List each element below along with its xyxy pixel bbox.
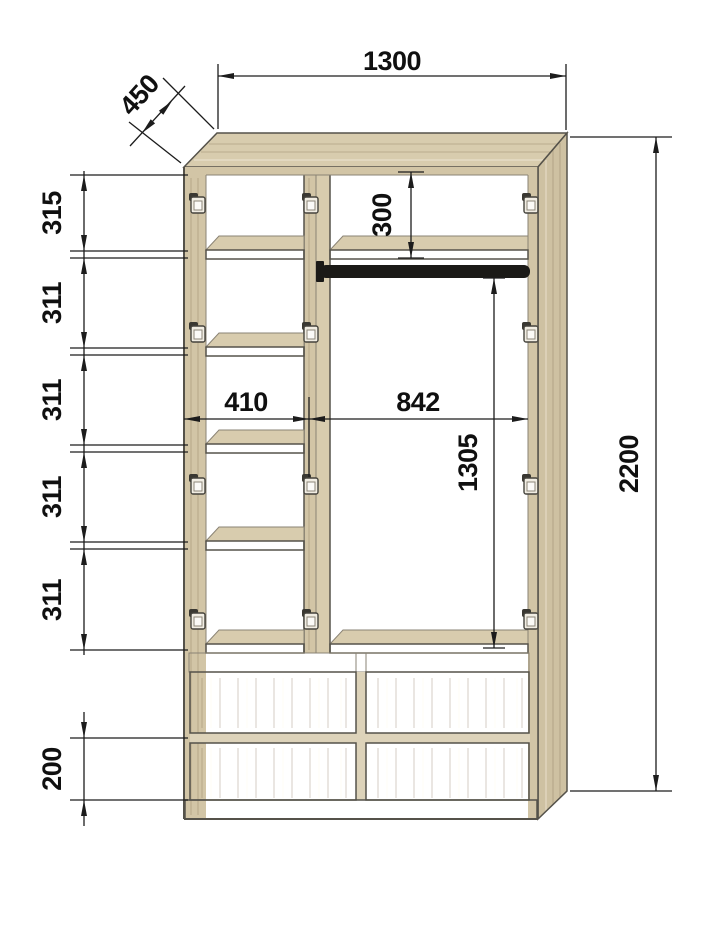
dim-top-section-label: 300 (367, 193, 397, 237)
drawer-front-bottom-right (366, 743, 529, 800)
wardrobe-technical-drawing: 1300 450 (0, 0, 720, 926)
top-panel (184, 133, 567, 167)
dim-left-stack: 315 311 311 311 311 (37, 171, 188, 655)
dim-shelf-gap-4-label: 311 (37, 475, 67, 518)
dim-depth: 450 (114, 69, 214, 163)
drawer-front-top-right (366, 672, 529, 733)
dim-hanging-height-label: 1305 (453, 433, 483, 492)
drawer-front-top-left (190, 672, 356, 733)
dim-height-label: 2200 (614, 435, 644, 493)
top-front-rail (184, 167, 538, 175)
right-side-panel (538, 133, 567, 819)
dim-left-section-width-label: 410 (224, 387, 268, 417)
dim-overall-height: 2200 (570, 137, 672, 791)
drawer-mid-rail (190, 733, 530, 743)
drawer-top-rail (189, 653, 529, 672)
center-divider (304, 175, 330, 653)
dim-shelf-gap-3-label: 311 (37, 378, 67, 421)
dim-width-label: 1300 (363, 46, 421, 76)
dim-right-section-width-label: 842 (396, 387, 440, 417)
drawer-front-bottom-left (190, 743, 356, 800)
dim-shelf-gap-2-label: 311 (37, 281, 67, 324)
plinth (185, 800, 537, 819)
dim-shelf-gap-1-label: 315 (37, 191, 67, 235)
dim-shelf-gap-5-label: 311 (37, 578, 67, 621)
dim-drawer-height-label: 200 (37, 747, 67, 791)
dim-drawer-height: 200 (37, 712, 188, 826)
dim-overall-width: 1300 (218, 46, 566, 130)
dim-depth-label: 450 (114, 69, 165, 121)
drawer-section (185, 653, 537, 819)
wardrobe-drawing-page: 1300 450 (0, 0, 720, 926)
